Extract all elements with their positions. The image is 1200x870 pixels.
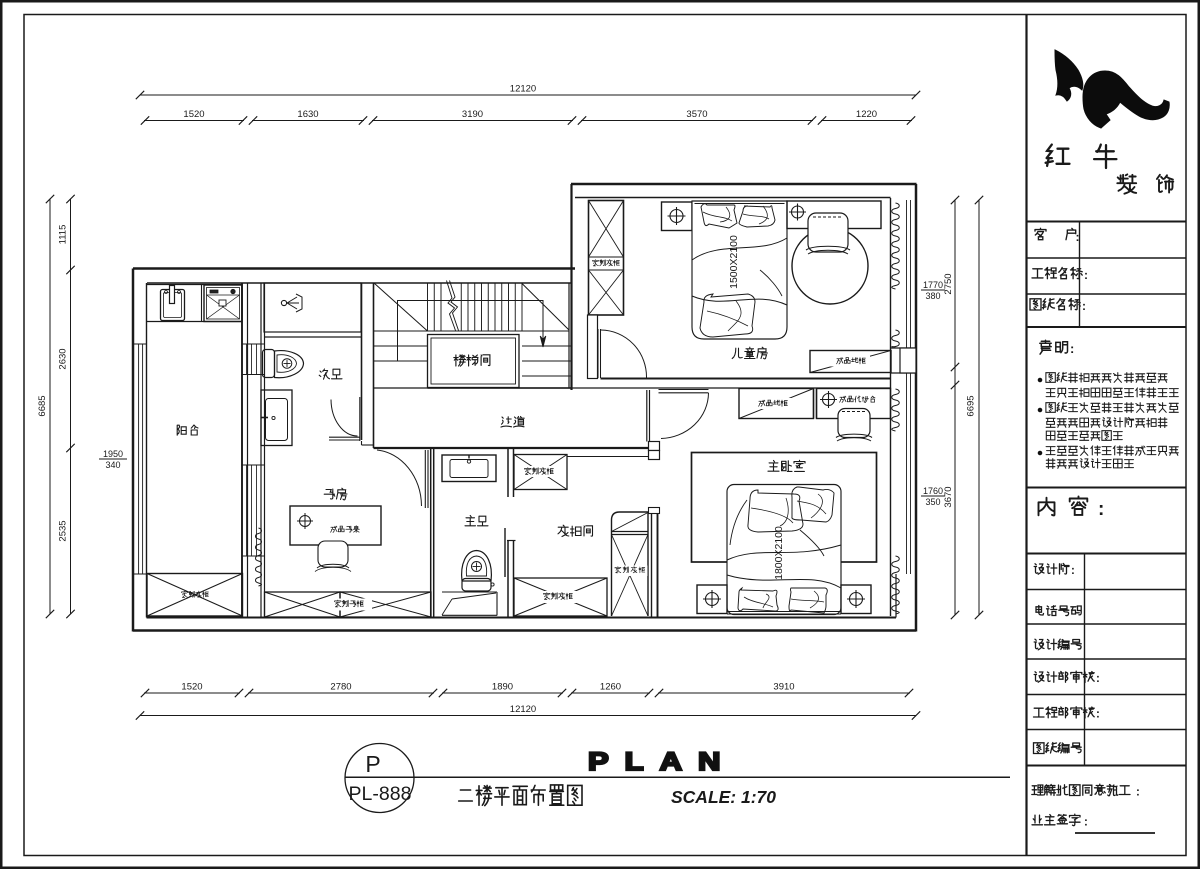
svg-text:1890: 1890 bbox=[492, 682, 513, 693]
svg-text:2780: 2780 bbox=[330, 682, 351, 693]
svg-text::: : bbox=[1084, 268, 1088, 282]
svg-text::: : bbox=[1136, 787, 1140, 799]
svg-text:1770: 1770 bbox=[923, 280, 943, 290]
svg-text::: : bbox=[1082, 299, 1086, 313]
svg-text::: : bbox=[1096, 673, 1100, 685]
svg-text:340: 340 bbox=[105, 460, 120, 470]
svg-text:PLAN: PLAN bbox=[588, 748, 736, 775]
svg-text:380: 380 bbox=[925, 291, 940, 301]
svg-text:2535: 2535 bbox=[58, 520, 69, 541]
svg-text:1630: 1630 bbox=[297, 109, 318, 120]
svg-text:P: P bbox=[365, 751, 380, 777]
svg-text:3670: 3670 bbox=[943, 486, 954, 507]
svg-text::: : bbox=[1098, 499, 1104, 520]
svg-text::: : bbox=[1076, 230, 1080, 244]
svg-text:3190: 3190 bbox=[462, 109, 483, 120]
svg-text::: : bbox=[1071, 565, 1075, 577]
svg-text:1220: 1220 bbox=[856, 109, 877, 120]
svg-text:1520: 1520 bbox=[181, 682, 202, 693]
svg-text::: : bbox=[1070, 341, 1074, 356]
svg-text:1260: 1260 bbox=[600, 682, 621, 693]
svg-text:PL-888: PL-888 bbox=[349, 783, 412, 805]
svg-text::: : bbox=[1096, 709, 1100, 721]
svg-text:1950: 1950 bbox=[103, 449, 123, 459]
svg-text:2630: 2630 bbox=[58, 348, 69, 369]
svg-text:1800X2100: 1800X2100 bbox=[773, 526, 785, 580]
svg-text:SCALE: 1:70: SCALE: 1:70 bbox=[671, 787, 776, 807]
svg-text:12120: 12120 bbox=[510, 704, 536, 715]
svg-text:6685: 6685 bbox=[37, 395, 48, 416]
svg-text:3910: 3910 bbox=[773, 682, 794, 693]
svg-text:350: 350 bbox=[925, 497, 940, 507]
svg-text:1760: 1760 bbox=[923, 486, 943, 496]
svg-text:1500X2100: 1500X2100 bbox=[728, 235, 740, 289]
svg-text:6695: 6695 bbox=[966, 395, 977, 416]
svg-text:1115: 1115 bbox=[58, 225, 69, 245]
svg-text:1520: 1520 bbox=[183, 109, 204, 120]
svg-text:3570: 3570 bbox=[686, 109, 707, 120]
svg-text:2750: 2750 bbox=[943, 273, 954, 294]
svg-text:12120: 12120 bbox=[510, 84, 536, 95]
svg-text::: : bbox=[1084, 817, 1088, 829]
